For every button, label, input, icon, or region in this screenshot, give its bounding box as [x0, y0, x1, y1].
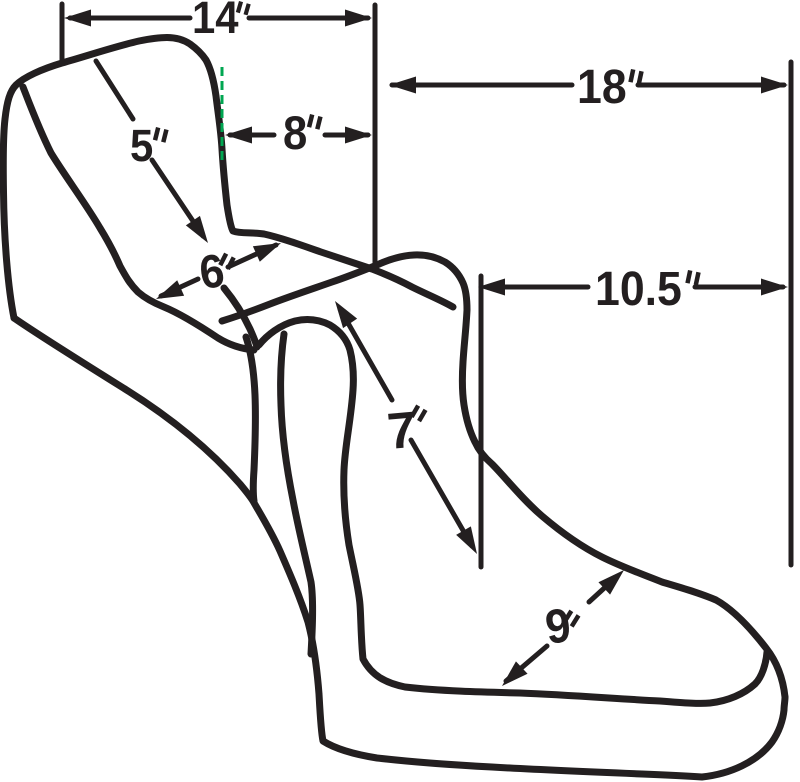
svg-text:7: 7 [385, 401, 418, 460]
svg-text:10.5: 10.5 [595, 262, 682, 316]
svg-text:5: 5 [130, 122, 153, 172]
svg-text:6: 6 [196, 244, 227, 300]
svg-text:14: 14 [192, 0, 239, 43]
svg-text:18: 18 [577, 60, 627, 114]
svg-text:8: 8 [283, 107, 307, 160]
